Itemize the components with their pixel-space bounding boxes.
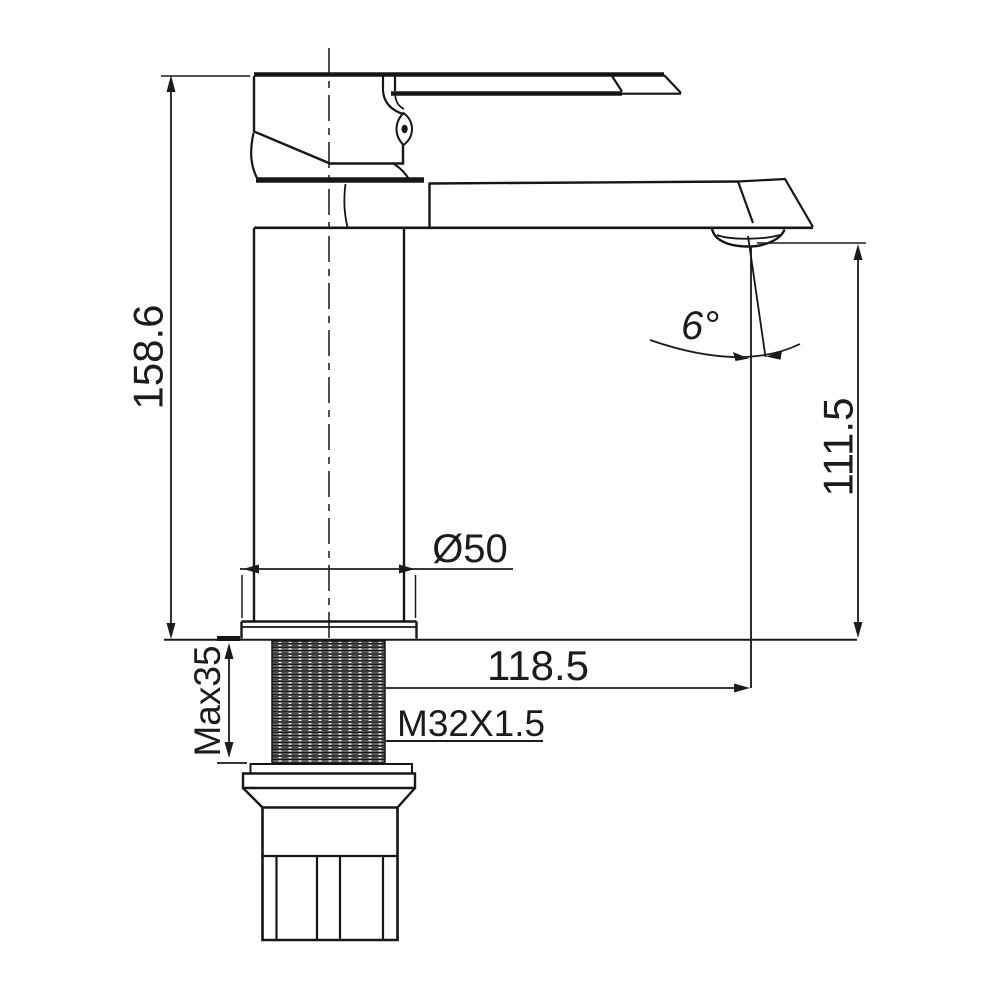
handle-cartridge-notch bbox=[383, 76, 395, 91]
spout-tip-bevel bbox=[738, 179, 813, 227]
nut-knurl-lines bbox=[277, 856, 384, 940]
dim-overall-height-label: 158.6 bbox=[125, 304, 172, 409]
joint-arc-left bbox=[251, 133, 257, 179]
arrow-left bbox=[243, 565, 259, 574]
faucet-outline bbox=[164, 48, 857, 940]
mounting-nut-assembly bbox=[243, 764, 415, 940]
nut-body bbox=[263, 808, 398, 941]
nut-flange-ring bbox=[243, 774, 415, 789]
drawing-canvas: 158.6 111.5 6° Ø50 Max35 118.5 bbox=[0, 0, 1000, 1000]
dim-overall-height: 158.6 bbox=[125, 75, 250, 639]
dim-max-thickness-label: Max35 bbox=[187, 645, 228, 756]
threaded-shank bbox=[272, 641, 385, 764]
dim-base-diameter: Ø50 bbox=[240, 527, 513, 618]
thread-spec-label: M32X1.5 bbox=[397, 703, 545, 744]
dim-spout-angle: 6° bbox=[650, 304, 800, 361]
upper-body bbox=[251, 76, 409, 181]
thread-hatch bbox=[272, 641, 385, 764]
arrow-up bbox=[167, 75, 176, 92]
arrow-up bbox=[854, 244, 863, 260]
faucet-technical-drawing: 158.6 111.5 6° Ø50 Max35 118.5 bbox=[0, 0, 1000, 1000]
arrow-down bbox=[167, 623, 176, 639]
riser-spout-curve bbox=[344, 184, 347, 227]
washer bbox=[251, 764, 413, 774]
dim-spout-height-label: 111.5 bbox=[815, 398, 862, 497]
dim-spout-height: 111.5 bbox=[757, 243, 866, 638]
arrow-down bbox=[854, 622, 863, 638]
cartridge-lens-dot bbox=[402, 125, 408, 133]
dim-spout-angle-label: 6° bbox=[681, 304, 719, 348]
spout-top-edge bbox=[430, 182, 739, 184]
dim-base-diameter-label: Ø50 bbox=[432, 527, 508, 571]
dim-spout-reach: 118.5 bbox=[386, 642, 750, 693]
arrow-right bbox=[399, 565, 415, 574]
arrow-right bbox=[734, 684, 750, 693]
dim-spout-reach-label: 118.5 bbox=[487, 642, 589, 689]
thread-spec: M32X1.5 bbox=[386, 703, 545, 744]
handle-lever bbox=[254, 75, 681, 146]
handle-tip bbox=[612, 75, 681, 94]
dim-max-thickness: Max35 bbox=[187, 643, 247, 763]
nut-taper bbox=[243, 788, 415, 808]
spout bbox=[254, 179, 813, 247]
